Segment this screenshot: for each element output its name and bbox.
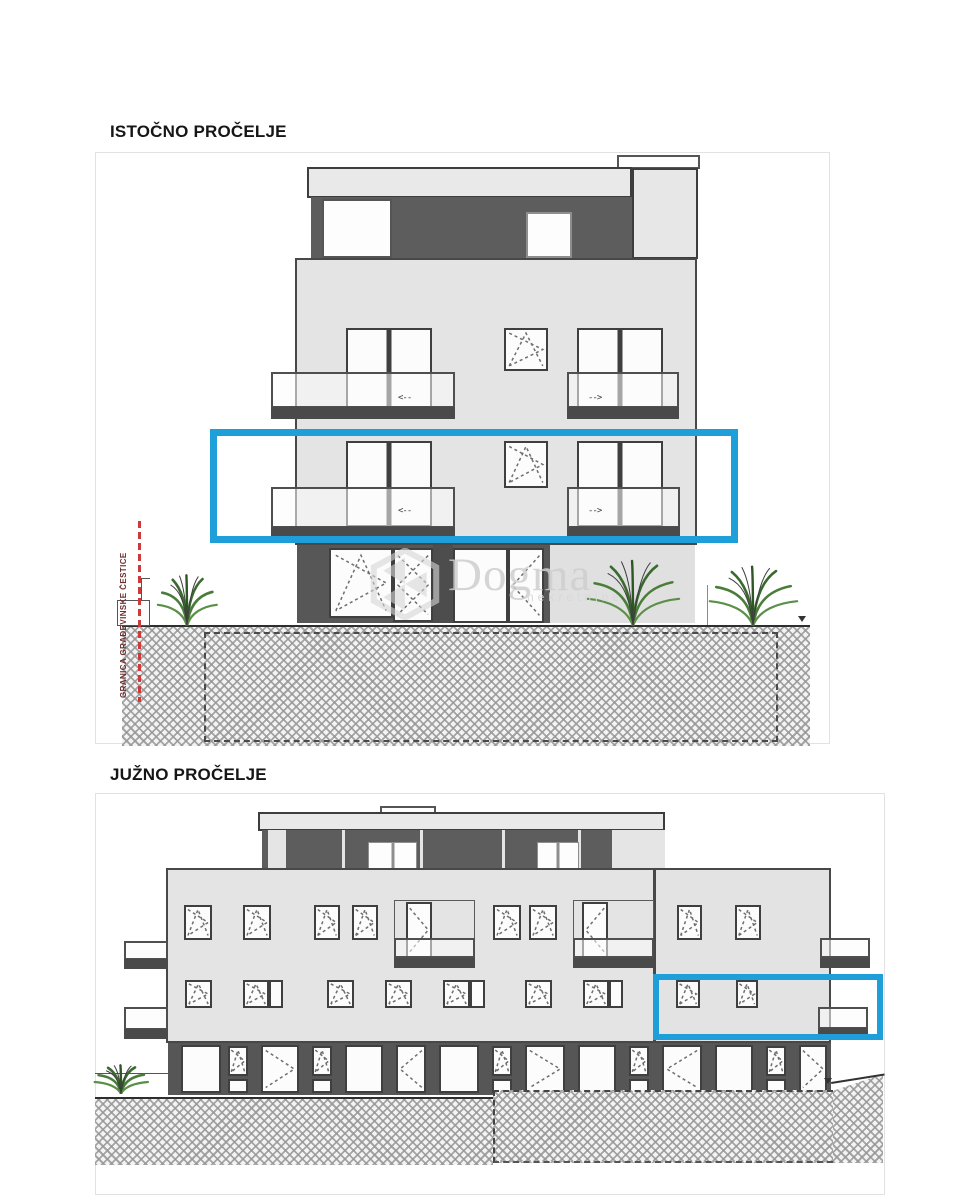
plot-boundary-label: GRANICA GRAĐEVINSKE ČESTICE [119,533,128,698]
window-sash [445,982,468,1006]
penthouse-pier [612,830,665,869]
ground-door [799,1045,827,1093]
window [385,980,412,1008]
ground-level-tick [824,1078,832,1084]
architectural-elevations-page: ISTOČNO PROČELJE <-- --> <-- --> GRANICA… [0,0,980,1200]
door-mullion [391,842,394,869]
balcony-railing [394,938,475,958]
penthouse-window [322,199,392,258]
roof-slab [307,167,632,198]
penthouse-pier [268,830,286,869]
terrain-hatch [95,1097,493,1165]
window [677,905,702,940]
window [243,905,271,940]
balcony-slab [394,958,475,968]
penthouse-door [526,212,572,258]
window [504,328,548,371]
ground-door [261,1045,299,1093]
window-mullion [468,981,472,1007]
window [493,905,521,940]
plant [707,564,799,626]
watermark-subtitle: nekretnine [527,590,623,604]
ground-door [662,1045,702,1093]
penthouse-pier [342,830,345,869]
watermark-logo-icon [366,548,444,620]
window-sash [245,982,267,1006]
door-mullion [557,842,560,869]
window [314,905,340,940]
window-sash [585,982,607,1006]
balcony-slab [567,407,679,419]
penthouse-pier [502,830,505,869]
ground-window [312,1046,332,1076]
window-pair [583,980,623,1008]
ground-level-tick [798,616,806,622]
ground-window [629,1046,649,1076]
plant [156,573,218,626]
penthouse-door [368,842,417,869]
slide-arrow-left: <-- [398,393,411,403]
ground-panel [312,1079,332,1093]
window [327,980,354,1008]
south-elevation-title: JUŽNO PROČELJE [110,765,267,785]
ground-door [439,1045,479,1093]
ground-door [525,1045,565,1093]
penthouse-door [537,842,579,869]
balcony-slab [573,958,654,968]
slide-arrow-right: --> [588,393,601,403]
window-mullion [607,981,611,1007]
balcony-railing [124,941,168,960]
window [185,980,212,1008]
balcony-slab [124,1029,168,1039]
plot-dashed-outline [204,632,778,742]
window [525,980,552,1008]
highlight-box-east-unit [210,429,738,543]
ground-door [396,1045,426,1093]
stair-tower [632,168,698,259]
window [352,905,378,940]
window-pair [443,980,485,1008]
highlight-box-south-unit [653,974,883,1040]
window [529,905,557,940]
window-mullion [267,981,271,1007]
roof-slab [258,812,665,831]
ground-window [228,1046,248,1076]
window-pair [243,980,283,1008]
ground-window [492,1046,512,1076]
ground-door [345,1045,383,1093]
curb-step-notch [141,578,150,601]
window [735,905,761,940]
balcony-slab [820,958,870,968]
balcony-railing [567,372,679,408]
plot-boundary-line [138,521,141,702]
balcony-railing [820,938,870,958]
penthouse-wall [262,830,665,869]
plant [93,1064,149,1094]
balcony-slab [124,959,168,969]
window [184,905,212,940]
penthouse-pier [420,830,423,869]
balcony-railing [124,1007,168,1030]
ground-door [578,1045,616,1093]
ground-door [715,1045,753,1093]
terrain-hatch-dashed [493,1090,833,1163]
ground-door [181,1045,221,1093]
east-elevation-title: ISTOČNO PROČELJE [110,122,287,142]
ground-panel [228,1079,248,1093]
ground-window [766,1046,786,1076]
balcony-railing [271,372,455,408]
balcony-slab [271,407,455,419]
balcony-railing [573,938,654,958]
